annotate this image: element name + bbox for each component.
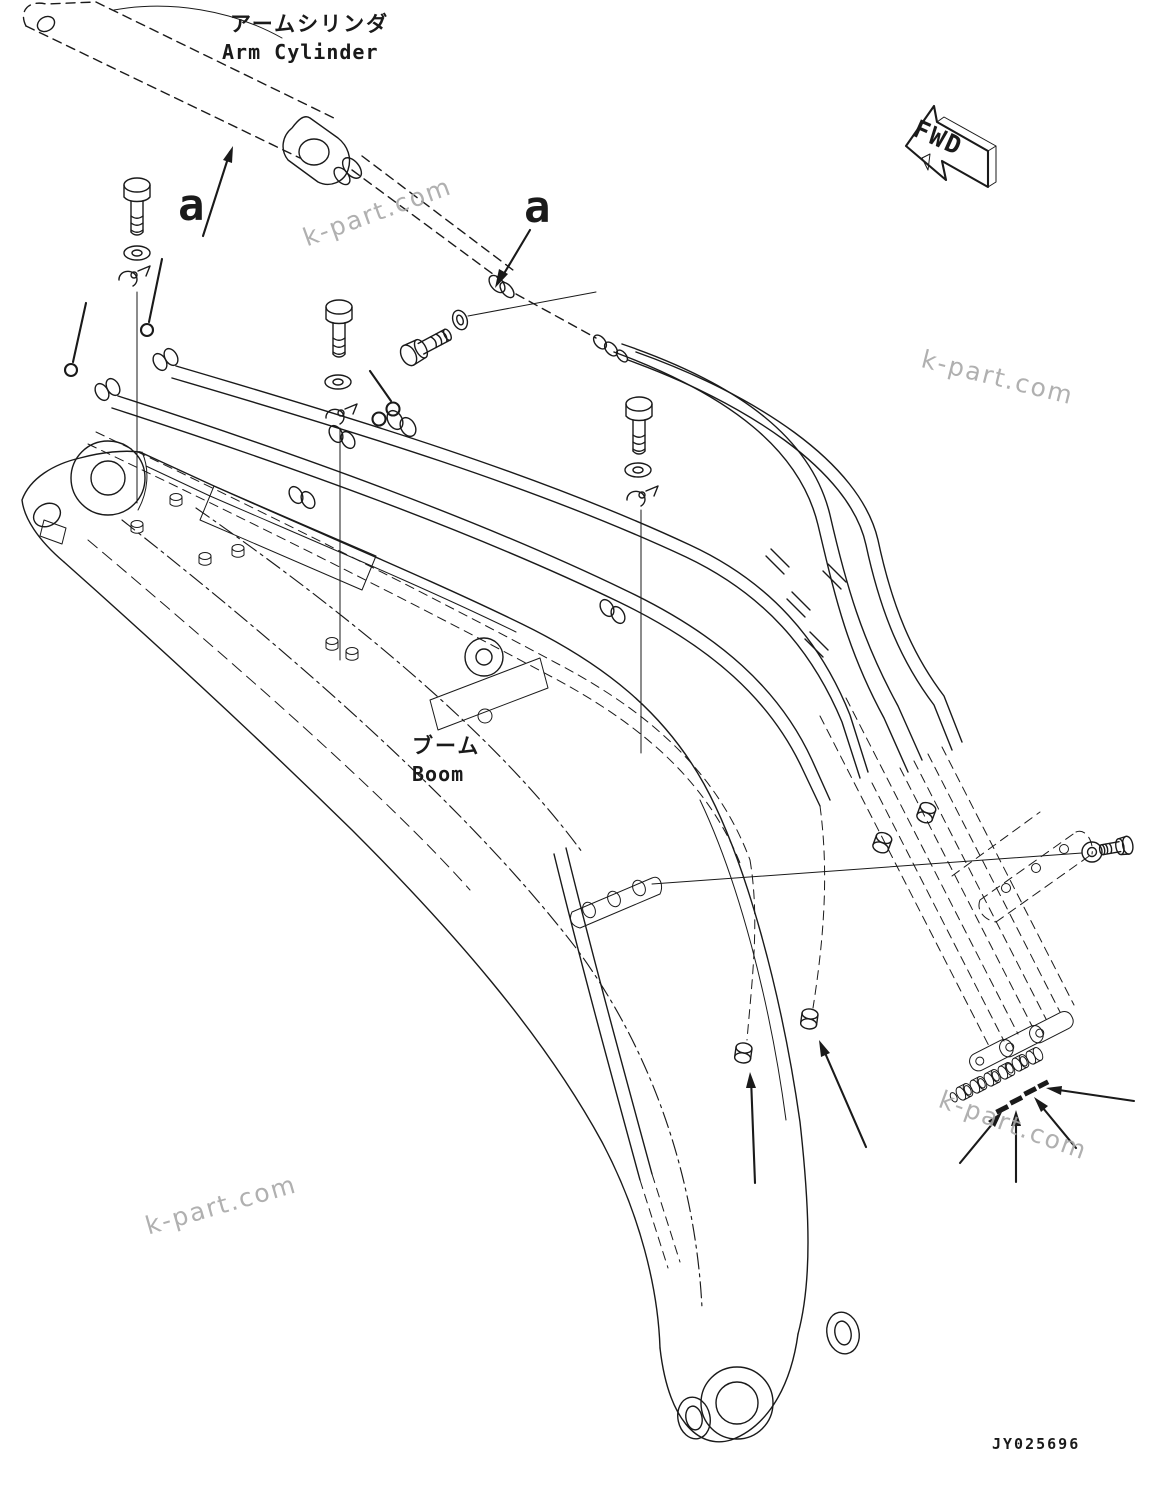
cotter-pin-1 <box>65 303 86 376</box>
boom-tip-rings <box>674 1309 863 1442</box>
diagonal-bolt-kit <box>397 292 596 368</box>
detail-a-label-right: a <box>524 186 551 230</box>
arm-cylinder-label-jp: アームシリンダ <box>230 14 389 35</box>
callout-arrow-4 <box>1046 1086 1134 1101</box>
boom-label-jp: ブーム <box>412 736 480 757</box>
bolt-kit-3 <box>625 397 658 753</box>
detail-a-arrow-right <box>495 230 530 288</box>
bundle-clamp-plate <box>952 812 1092 922</box>
boom-label-en: Boom <box>412 764 464 784</box>
callout-arrow-6 <box>819 1040 866 1147</box>
bundle-leader-line <box>652 853 1082 884</box>
hose-bundle <box>820 698 1076 1105</box>
boom-drawing <box>22 441 808 1442</box>
callout-arrow-5 <box>746 1072 756 1183</box>
spring-clip <box>370 371 400 426</box>
line-art-canvas <box>0 0 1168 1485</box>
detail-a-arrow-left <box>203 146 233 236</box>
detail-a-label-left: a <box>178 184 205 228</box>
arm-cylinder-label-en: Arm Cylinder <box>222 42 379 62</box>
drawing-number: JY025696 <box>992 1437 1080 1452</box>
parts-diagram-page: アームシリンダ Arm Cylinder a a FWD ブーム Boom JY… <box>0 0 1168 1485</box>
rod-hoses <box>614 344 962 772</box>
boom-hoses <box>88 366 868 1268</box>
cotter-pin-2 <box>141 259 162 336</box>
